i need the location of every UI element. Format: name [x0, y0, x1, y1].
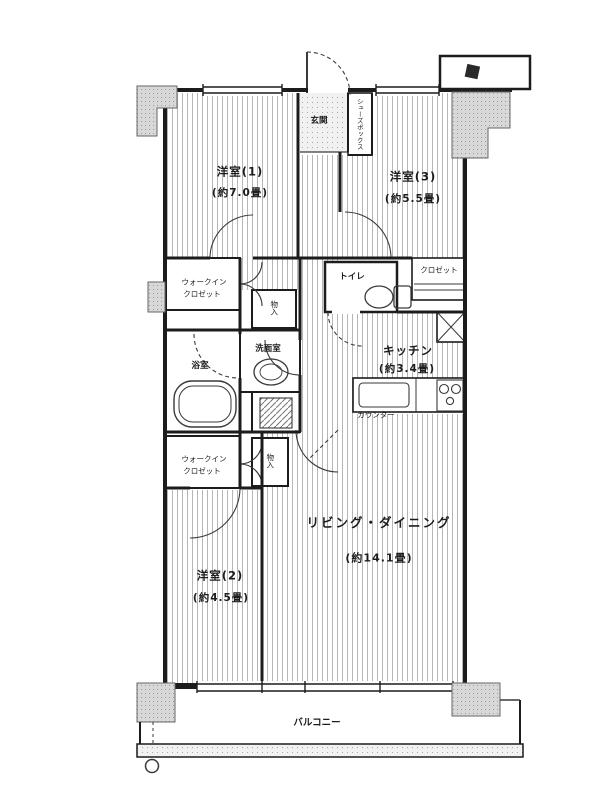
floor-plan: 洋室(1) (約7.0畳) 洋室(3) (約5.5畳) 玄関 シューズボックス …	[0, 0, 600, 800]
meter-box-icon	[465, 64, 480, 79]
meter-box	[440, 56, 530, 89]
room-size-bedroom1: (約7.0畳)	[212, 188, 268, 199]
counter-label: カウンター	[357, 411, 395, 419]
room-size-bedroom3: (約5.5畳)	[385, 194, 441, 205]
drain-icon	[146, 760, 159, 773]
washing-machine-space	[260, 398, 292, 428]
room-label-washroom: 洗面室	[255, 345, 281, 354]
floorplan-linework	[0, 0, 600, 800]
room-size-bedroom2: (約4.5畳)	[193, 593, 249, 604]
balcony-label: バルコニー	[293, 718, 340, 728]
shoe-box-label: シューズボックス	[356, 98, 363, 150]
storage-lower-label: 物入	[266, 454, 274, 469]
room-size-living: (約14.1畳)	[345, 553, 412, 564]
closet-label: クロゼット	[420, 266, 458, 274]
storage-hall-label: 物入	[270, 301, 278, 316]
room-label-bath: 浴室	[191, 362, 208, 371]
wic-lower-label-line2: クロゼット	[183, 467, 221, 475]
room-label-bedroom3: 洋室(3)	[390, 171, 437, 183]
room-size-kitchen: (約3.4畳)	[379, 364, 435, 375]
wic-lower-label-line1: ウォークイン	[182, 455, 227, 463]
room-label-living: リビング・ダイニング	[306, 517, 451, 530]
room-label-toilet: トイレ	[339, 273, 365, 282]
room-label-bedroom2: 洋室(2)	[197, 570, 244, 582]
room-label-bedroom1: 洋室(1)	[217, 166, 264, 178]
wic-upper-label-line2: クロゼット	[183, 290, 221, 298]
room-label-kitchen: キッチン	[383, 345, 433, 357]
balcony-railing	[137, 744, 523, 757]
kitchen-counter	[353, 378, 465, 412]
wic-upper-label-line1: ウォークイン	[182, 278, 227, 286]
room-label-entrance: 玄関	[310, 117, 327, 126]
pipe-space	[437, 312, 465, 342]
